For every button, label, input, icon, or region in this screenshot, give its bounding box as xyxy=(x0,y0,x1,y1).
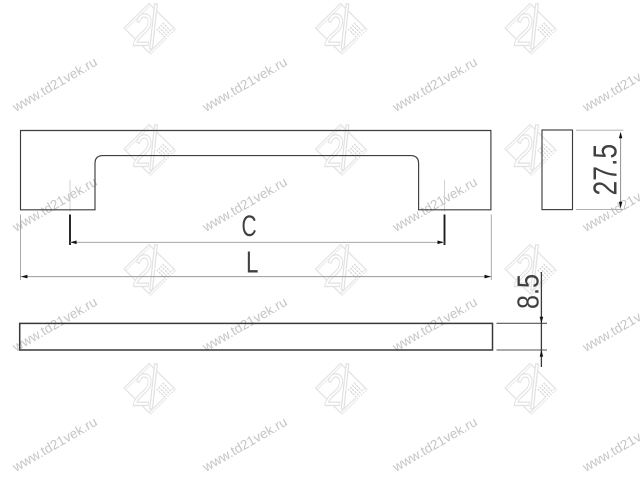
svg-text:www.td21vek.ru: www.td21vek.ru xyxy=(579,294,640,355)
svg-text:www.td21vek.ru: www.td21vek.ru xyxy=(199,54,290,115)
svg-text:www.td21vek.ru: www.td21vek.ru xyxy=(389,414,480,475)
svg-text:www.td21vek.ru: www.td21vek.ru xyxy=(389,54,480,115)
svg-text:8.5: 8.5 xyxy=(511,274,546,309)
svg-text:www.td21vek.ru: www.td21vek.ru xyxy=(389,174,480,235)
svg-text:www.td21vek.ru: www.td21vek.ru xyxy=(579,54,640,115)
svg-text:www.td21vek.ru: www.td21vek.ru xyxy=(199,294,290,355)
svg-text:www.td21vek.ru: www.td21vek.ru xyxy=(9,294,100,355)
svg-text:www.td21vek.ru: www.td21vek.ru xyxy=(579,414,640,475)
svg-text:www.td21vek.ru: www.td21vek.ru xyxy=(9,54,100,115)
svg-text:C: C xyxy=(242,210,257,243)
svg-text:www.td21vek.ru: www.td21vek.ru xyxy=(9,174,100,235)
svg-text:www.td21vek.ru: www.td21vek.ru xyxy=(199,414,290,475)
svg-text:www.td21vek.ru: www.td21vek.ru xyxy=(9,414,100,475)
svg-text:27.5: 27.5 xyxy=(586,144,623,196)
svg-text:www.td21vek.ru: www.td21vek.ru xyxy=(389,294,480,355)
svg-text:L: L xyxy=(246,245,258,279)
